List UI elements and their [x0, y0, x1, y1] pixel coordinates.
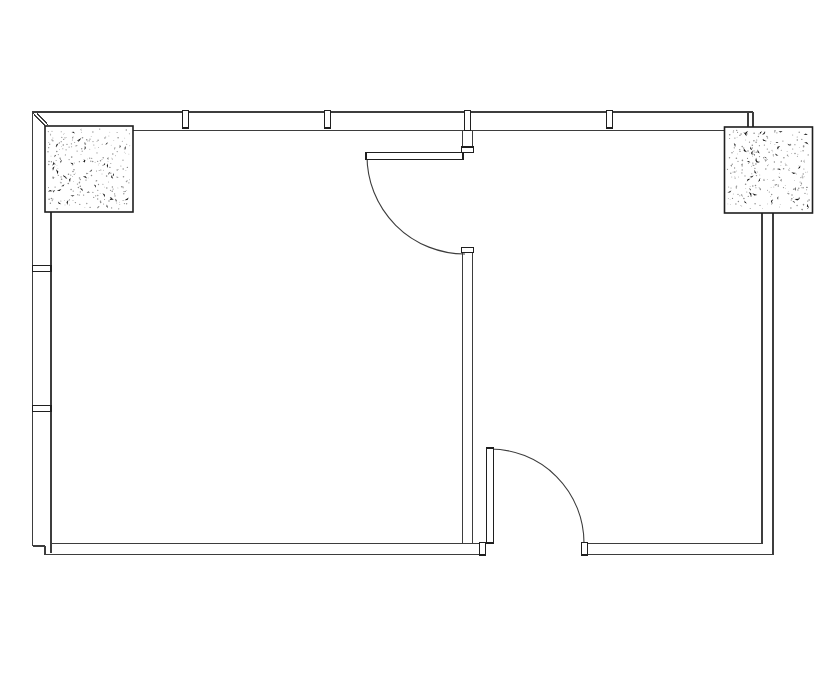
column-top-right-stipple-dot	[747, 158, 748, 159]
column-top-left-stipple-dot	[125, 170, 126, 171]
column-top-right-stipple-dot	[739, 135, 740, 136]
column-top-right-stipple-dot	[738, 201, 739, 202]
column-top-right-stipple-dot	[791, 153, 792, 154]
column-top-right-stipple-dot	[743, 198, 745, 200]
column-top-right-stipple-dot	[728, 186, 729, 187]
column-top-left-stipple-dot	[117, 177, 118, 178]
column-top-left-stipple-dot	[99, 128, 100, 129]
column-top-right-stipple-dot	[797, 136, 798, 137]
column-top-left-stipple-dot	[98, 164, 99, 165]
column-top-right-stipple-dot	[778, 176, 779, 177]
column-top-right-stipple-dot	[759, 187, 760, 188]
column-top-right-stipple-dot	[753, 150, 754, 151]
column-top-right-stipple-dot	[750, 186, 751, 187]
column-top-left-stipple-dot	[51, 131, 52, 132]
column-top-left-stipple-dot	[118, 208, 119, 209]
column-top-right-stipple-dot	[770, 196, 771, 197]
column-top-right-stipple-dot	[801, 209, 803, 211]
column-top-left-stipple-dot	[86, 139, 88, 141]
column-top-left-stipple-dot	[77, 183, 78, 184]
column-top-right-stipple-dot	[801, 139, 802, 140]
column-top-right-stipple-dot	[733, 151, 734, 152]
column-top-right-stipple-dot	[748, 196, 749, 197]
column-top-left-stipple-dot	[64, 200, 65, 201]
column-top-left-stipple-dot	[117, 151, 118, 152]
column-top-left-stipple-dot	[60, 182, 61, 183]
column-top-left-stipple-dot	[81, 154, 82, 155]
column-top-right-stipple-dot	[804, 162, 805, 163]
column-top-right-stipple-dot	[740, 205, 741, 206]
column-top-right-stipple-dot	[801, 151, 802, 152]
door-top-interior	[366, 153, 465, 255]
column-top-right-stipple-dot	[803, 177, 804, 178]
column-top-left-stipple-dot	[105, 137, 106, 138]
column-top-left-stipple-dot	[48, 147, 49, 148]
column-top-left-stipple-dot	[89, 139, 90, 140]
column-top-left-stipple-dot	[56, 208, 57, 209]
column-top-right-stipple-dot	[758, 134, 759, 135]
column-top-left-stipple-dot	[69, 199, 70, 200]
left-wall-mullion-2	[33, 406, 52, 412]
column-top-left-stipple-dot	[93, 197, 94, 198]
top-wall-mullion-4	[607, 111, 613, 129]
door-bottom-exterior-leaf	[487, 448, 494, 543]
column-top-right-stipple-dot	[789, 170, 790, 171]
column-top-right-stipple-dot	[746, 191, 747, 192]
column-top-left-stipple-dot	[63, 144, 65, 146]
column-top-right-stipple-dot	[762, 208, 763, 209]
column-top-right-stipple-dot	[733, 131, 734, 132]
column-top-left-stipple-dot	[74, 162, 75, 163]
column-top-left-stipple-dot	[98, 147, 99, 148]
column-top-left-stipple-dot	[113, 140, 114, 141]
column-top-right-stipple-dot	[806, 189, 807, 190]
column-top-left-stipple-dot	[58, 154, 59, 155]
column-top-right-stipple-dot	[804, 176, 805, 177]
column-top-right-stipple-dot	[793, 189, 794, 190]
column-top-right-stipple-dot	[774, 130, 775, 131]
column-top-right-stipple-dot	[780, 161, 781, 162]
column-top-left-stipple-dot	[85, 207, 86, 208]
column-top-left-stipple-dot	[51, 198, 52, 199]
column-top-left-stipple-dot	[110, 190, 111, 191]
column-top-right-stipple-dot	[782, 140, 783, 141]
column-top-right-stipple-dot	[794, 180, 795, 181]
column-top-left-stipple-dot	[97, 161, 98, 162]
column-top-left-stipple-dot	[65, 149, 66, 150]
column-top-right-stipple-dot	[773, 154, 774, 155]
column-top-right-stipple-dot	[732, 172, 733, 173]
column-top-right-stipple-dot	[755, 163, 757, 165]
column-top-left-stipple-dot	[50, 134, 51, 135]
column-top-left-stipple-dot	[73, 190, 74, 191]
column-top-left-stipple-dot	[114, 195, 115, 196]
column-top-left-stipple-dot	[75, 173, 76, 174]
interior-wall-top-cap	[462, 248, 474, 253]
column-top-left-stipple-dot	[96, 180, 97, 181]
column-top-left-stipple-dot	[47, 151, 48, 152]
column-top-right-stipple-dot	[729, 157, 730, 158]
column-top-left-stipple-dot	[73, 200, 74, 201]
column-top-right-stipple-dot	[767, 203, 768, 204]
column-top-right-stipple-dot	[739, 149, 740, 150]
column-top-left-stipple-dot	[82, 137, 84, 139]
column-top-left-stipple-dot	[97, 195, 98, 196]
column-top-left-stipple-dot	[70, 189, 72, 191]
column-top-left-stipple-dot	[80, 186, 82, 188]
column-top-right-stipple-dot	[736, 171, 737, 172]
column-top-right-stipple-dot	[807, 194, 808, 195]
column-top-left-stipple-dot	[79, 181, 80, 182]
column-top-left-stipple-dot	[52, 200, 53, 201]
column-top-right-stipple-dot	[779, 207, 780, 208]
column-top-right-stipple-dot	[770, 143, 771, 144]
column-top-left-stipple-dot	[86, 203, 87, 204]
column-top-left-stipple-dot	[88, 178, 89, 179]
column-top-right-stipple-dot	[791, 200, 792, 201]
column-top-right-stipple-dot	[785, 164, 786, 165]
column-top-right-stipple-dot	[783, 187, 784, 188]
column-top-left-stipple-dot	[73, 169, 75, 171]
column-top-left-stipple-dot	[78, 187, 79, 188]
column-top-right-stipple-dot	[741, 146, 743, 148]
column-top-right-stipple-dot	[742, 160, 744, 162]
column-top-right-stipple-dot	[791, 194, 792, 195]
column-top-left-stipple-dot	[102, 184, 103, 185]
column-top-right-stipple-dot	[799, 132, 800, 133]
column-top-left-stipple-dot	[114, 147, 115, 148]
column-top-right-stipple-dot	[769, 191, 770, 192]
column-top-right-stipple-dot	[749, 142, 750, 143]
column-top-left-stipple-dot	[100, 160, 101, 161]
column-top-right-stipple-dot	[731, 166, 732, 167]
column-top-left-stipple-dot	[56, 160, 57, 161]
column-top-right-stipple-dot	[771, 187, 772, 188]
column-top-right-stipple-dot	[803, 204, 805, 206]
column-top-left-outline	[45, 126, 133, 212]
column-top-left-stipple-dot	[60, 200, 61, 201]
column-top-right-stipple-dot	[772, 150, 773, 151]
column-top-left-stipple-dot	[122, 168, 123, 169]
column-top-left-stipple-dot	[108, 136, 109, 137]
column-top-right-stipple-dot	[729, 138, 730, 139]
column-top-left-stipple-dot	[118, 169, 119, 170]
column-top-right-stipple-dot	[752, 156, 753, 157]
column-top-right-stipple-dot	[741, 172, 742, 173]
column-top-right-stipple-dot	[789, 168, 790, 169]
column-top-right-stipple-dot	[760, 189, 761, 190]
column-top-right-stipple-dot	[773, 168, 775, 170]
column-top-left-stipple-dot	[108, 200, 109, 201]
column-top-left-stipple-dot	[48, 187, 49, 188]
column-top-left-stipple-dot	[68, 174, 70, 176]
column-top-left-stipple-dot	[87, 141, 88, 142]
door-bottom-exterior-swing-arc	[490, 449, 584, 543]
column-top-left-stipple-dot	[128, 182, 129, 183]
column-top-right-stipple-dot	[807, 200, 808, 201]
column-top-right-stipple-dot	[756, 152, 757, 153]
column-top-right-stipple-dot	[752, 185, 753, 186]
door-opening-left-jamb-cap	[480, 543, 486, 556]
column-top-left-stipple-dot	[119, 202, 120, 203]
top-wall-mullion-3	[465, 111, 471, 131]
column-top-left-stipple-dot	[51, 156, 52, 157]
column-top-left-stipple-dot	[103, 170, 104, 171]
column-top-right-stipple-dot	[759, 205, 760, 206]
column-top-right-stipple-dot	[768, 151, 770, 153]
column-top-right-stipple-dot	[745, 188, 746, 189]
column-top-left-stipple-dot	[129, 145, 130, 146]
column-top-left-stipple-dot	[104, 199, 105, 200]
column-top-right-stipple-dot	[733, 130, 734, 131]
column-top-left-stipple-dot	[79, 194, 80, 195]
left-wall-mullion-1	[33, 266, 52, 272]
column-top-right-stipple-dot	[763, 157, 764, 158]
column-top-left-stipple-dot	[60, 176, 61, 177]
column-top-left-stipple-dot	[93, 144, 94, 145]
column-top-right-stipple-dot	[797, 189, 798, 190]
column-top-right-stipple-dot	[794, 144, 795, 145]
door-top-interior-swing-arc	[367, 156, 465, 254]
column-top-right-stipple-dot	[766, 136, 767, 137]
column-top-right-stipple-dot	[753, 140, 755, 142]
column-top-left-stipple-dot	[124, 138, 125, 139]
column-top-left-stipple-dot	[121, 186, 123, 188]
column-top-left-stipple-dot	[61, 141, 62, 142]
column-top-left-stipple-dot	[102, 144, 103, 145]
column-top-left-stipple-dot	[80, 179, 81, 180]
column-top-right-stipple-dot	[734, 147, 735, 148]
column-top-left-stipple-dot	[110, 163, 111, 164]
column-top-left-stipple-dot	[96, 152, 97, 153]
door-bottom-exterior	[487, 448, 585, 543]
column-top-right-stipple-dot	[759, 145, 760, 146]
column-top-left-stipple-dot	[99, 163, 100, 164]
column-top-right	[725, 127, 813, 213]
column-top-left-stipple-dot	[57, 165, 58, 166]
column-top-left-stipple-dot	[54, 186, 55, 187]
column-top-right-stipple-dot	[785, 188, 786, 189]
column-top-left-stipple-dot	[56, 151, 58, 153]
column-top-left-stipple-dot	[84, 143, 85, 144]
column-top-left-stipple-dot	[89, 207, 90, 208]
column-top-right-stipple-dot	[803, 146, 805, 148]
column-top-left-stipple-dot	[58, 175, 59, 176]
column-top-right-stipple-dot	[729, 134, 731, 136]
column-top-left-stipple-dot	[125, 153, 126, 154]
column-top-left-stipple-dot	[76, 145, 77, 146]
column-top-left-stipple-dot	[81, 130, 82, 131]
column-top-right-stipple-dot	[785, 185, 786, 186]
column-top-right-stipple-dot	[728, 204, 729, 205]
column-top-left-stipple-dot	[116, 169, 117, 170]
column-top-left-stipple-dot	[123, 193, 124, 194]
column-top-right-stipple-dot	[800, 185, 801, 186]
column-top-left-stipple-dot	[123, 176, 125, 178]
column-top-left-stipple-dot	[97, 141, 98, 142]
column-top-right-stipple-dot	[794, 153, 795, 154]
column-top-left-stipple-dot	[123, 191, 124, 192]
column-top-right-stipple-dot	[790, 207, 792, 209]
column-top-right-stipple-dot	[756, 139, 757, 140]
column-top-left-stipple-dot	[71, 146, 72, 147]
column-top-right-stipple-dot	[736, 130, 737, 131]
column-top-right-stipple-dot	[801, 184, 802, 185]
column-top-right-stipple-dot	[742, 165, 743, 166]
column-top-left-stipple-dot	[83, 194, 84, 195]
column-top-left-stipple-dot	[73, 181, 74, 182]
column-top-left-stipple-dot	[89, 149, 90, 150]
column-top-right-stipple-dot	[773, 187, 774, 188]
column-top-right-stipple-dot	[731, 177, 732, 178]
column-top-right-stipple-dot	[767, 148, 768, 149]
column-top-left-stipple-dot	[100, 200, 102, 202]
column-top-left-stipple-dot	[48, 199, 50, 201]
column-top-left-stipple-dot	[68, 159, 69, 160]
column-top-left-stipple-dot	[122, 160, 123, 161]
column-top-right-stipple-dot	[747, 150, 748, 151]
column-top-right-stipple-dot	[773, 170, 774, 171]
column-top-left-stipple-dot	[120, 166, 121, 167]
column-top-right-stipple-dot	[751, 173, 752, 174]
column-top-right-stipple-dot	[801, 161, 802, 162]
column-top-left-stipple-dot	[78, 141, 79, 142]
column-top-right-stipple-dot	[754, 203, 755, 204]
column-top-right-stipple-dot	[772, 202, 773, 203]
column-top-left-stipple-dot	[77, 194, 78, 195]
column-top-right-stipple-dot	[773, 180, 774, 181]
column-top-left-stipple-dot	[87, 173, 88, 174]
column-top-right-stipple-dot	[737, 137, 738, 138]
column-top-right-stipple-dot	[730, 199, 731, 200]
column-top-right-stipple-dot	[801, 183, 802, 184]
column-top-right-stipple-dot	[740, 133, 741, 134]
column-top-left-stipple-dot	[61, 137, 62, 138]
column-top-right-stipple-dot	[736, 185, 737, 186]
floor-plan-drawing	[0, 0, 835, 678]
column-top-right-stipple-dot	[759, 174, 760, 175]
column-top-right-stipple-dot	[752, 147, 753, 148]
column-top-left-stipple-dot	[85, 143, 86, 144]
column-top-right-stipple-dot	[738, 177, 739, 178]
column-top-right-stipple-dot	[797, 156, 798, 157]
column-top-left-stipple-dot	[117, 187, 118, 188]
column-top-right-stipple-dot	[745, 140, 746, 141]
column-top-left-stipple-dot	[96, 170, 97, 171]
column-top-left-stipple-dot	[129, 179, 130, 180]
column-top-left-stipple-dot	[92, 161, 93, 162]
column-top-left-stipple-dot	[103, 203, 104, 204]
column-top-right-stipple-dot	[728, 198, 729, 199]
column-top-left-stipple-dot	[72, 171, 74, 173]
column-top-right-stipple-dot	[731, 165, 733, 167]
column-top-right-stipple-dot	[806, 187, 807, 188]
column-top-right-stipple-dot	[757, 171, 758, 172]
column-top-right-stipple-dot	[797, 154, 798, 155]
column-top-right-stipple-dot	[799, 147, 800, 148]
column-top-left-stipple-dot	[126, 144, 127, 145]
column-top-left-stipple-dot	[52, 190, 53, 191]
column-top-right-stipple-dot	[742, 164, 743, 165]
column-top-left-stipple-dot	[60, 159, 61, 160]
column-top-left-stipple-dot	[48, 161, 49, 162]
column-top-right-stipple-dot	[737, 194, 738, 195]
column-top-right-stipple-dot	[808, 199, 810, 201]
column-top-right-stipple-dot	[760, 178, 761, 179]
column-top-right-stipple-dot	[733, 172, 734, 173]
column-top-left-stipple-dot	[110, 173, 111, 174]
column-top-right-stipple-dot	[804, 193, 805, 194]
column-top-left-stipple-dot	[59, 157, 61, 159]
column-top-right-stipple-dot	[730, 187, 731, 188]
column-top-left-stipple-dot	[92, 192, 93, 193]
column-top-right-stipple-dot	[772, 180, 773, 181]
column-top-left-stipple-dot	[126, 203, 127, 204]
column-top-left-stipple-dot	[99, 170, 100, 171]
column-top-left-stipple-dot	[111, 191, 113, 193]
column-top-left-stipple-dot	[117, 132, 118, 133]
column-top-left-stipple-dot	[90, 161, 91, 162]
column-top-right-stipple-dot	[807, 208, 808, 209]
column-top-right-stipple-dot	[798, 188, 799, 189]
column-top-left-stipple-dot	[65, 154, 66, 155]
column-top-right-stipple-dot	[736, 157, 738, 159]
column-top-right-stipple-dot	[767, 165, 768, 166]
column-top-left-stipple-dot	[122, 141, 123, 142]
column-top-right-stipple-dot	[767, 159, 768, 160]
column-top-left-stipple-dot	[97, 190, 98, 191]
column-top-right-stipple-dot	[752, 165, 753, 166]
column-top-left-stipple-dot	[91, 136, 92, 137]
column-top-right-stipple-dot	[744, 175, 745, 176]
column-top-left-stipple-dot	[95, 148, 96, 149]
column-top-left-stipple-dot	[126, 129, 127, 130]
column-top-right-stipple-dot	[734, 167, 735, 168]
column-top-left-stipple-dot	[100, 193, 101, 194]
doors-layer	[366, 153, 584, 544]
column-top-right-stipple-dot	[732, 198, 733, 199]
column-top-right-stipple-dot	[793, 197, 794, 198]
column-top-right-stipple-dot	[783, 168, 785, 170]
column-top-right-stipple-dot	[808, 154, 809, 155]
column-top-right-stipple-dot	[800, 177, 801, 178]
column-top-right-stipple-dot	[770, 141, 771, 142]
column-top-right-stipple-dot	[739, 195, 740, 196]
column-top-left-stipple-dot	[108, 161, 109, 162]
column-top-right-stipple-dot	[779, 177, 780, 178]
column-top-left-stipple-dot	[53, 177, 54, 178]
column-top-right-stipple-dot	[730, 204, 731, 205]
column-top-left-stipple-dot	[72, 139, 73, 140]
column-top-left-stipple-dot	[51, 161, 52, 162]
column-top-left-stipple-dot	[81, 129, 82, 130]
column-top-right-stipple-dot	[754, 168, 755, 169]
column-top-left-stipple-dot	[48, 164, 49, 165]
column-top-right-stipple-dot	[737, 154, 738, 155]
column-top-right-stipple-dot	[792, 148, 793, 149]
column-top-right-stipple-dot	[731, 152, 732, 153]
column-top-right-stipple-dot	[763, 179, 764, 180]
column-top-right-stipple-dot	[791, 198, 793, 200]
column-top-right-stipple-dot	[750, 208, 751, 209]
column-top-left-stipple-dot	[119, 204, 120, 205]
column-top-left-stipple-dot	[106, 187, 107, 188]
column-top-left-stipple-dot	[98, 184, 99, 185]
column-top-left-stipple-dot	[109, 132, 110, 133]
column-top-right-stipple-dot	[788, 193, 789, 194]
column-top-left-stipple-dot	[58, 168, 59, 169]
column-top-left-stipple-dot	[63, 139, 64, 140]
